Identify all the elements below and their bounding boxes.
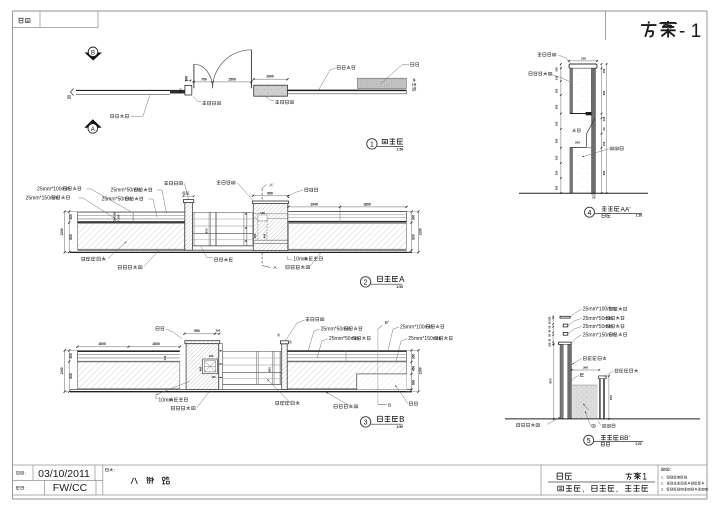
svg-text:160: 160 — [209, 354, 214, 358]
svg-text:250: 250 — [555, 170, 559, 175]
svg-text:150: 150 — [602, 141, 606, 146]
svg-text:3: 3 — [364, 420, 368, 427]
svg-text:300: 300 — [583, 365, 588, 369]
svg-text:A: A — [91, 127, 95, 133]
svg-text:25mm*50mm: 25mm*50mm — [321, 326, 351, 332]
svg-text:900: 900 — [267, 367, 271, 372]
svg-text:3.: 3. — [661, 488, 664, 492]
svg-text:FW/CC: FW/CC — [53, 482, 88, 494]
svg-text:.: . — [687, 476, 688, 480]
svg-text:100: 100 — [602, 68, 606, 73]
svg-text:1:50: 1:50 — [396, 425, 403, 429]
svg-text:03/10/2011: 03/10/2011 — [38, 468, 90, 480]
svg-text:150: 150 — [602, 116, 606, 121]
svg-text:20: 20 — [592, 196, 596, 200]
svg-text:1940: 1940 — [310, 202, 318, 206]
svg-text:1800: 1800 — [363, 202, 371, 206]
svg-text:800: 800 — [69, 373, 73, 379]
svg-text::: : — [670, 468, 671, 473]
svg-text:150: 150 — [555, 155, 559, 160]
svg-text:A: A — [399, 275, 405, 284]
svg-text:100: 100 — [179, 88, 183, 93]
svg-text:1200: 1200 — [60, 367, 64, 374]
svg-text:1000: 1000 — [266, 75, 274, 79]
svg-text:300: 300 — [69, 353, 73, 359]
svg-text:2.: 2. — [661, 482, 664, 486]
svg-text:600: 600 — [609, 395, 613, 400]
svg-text:100: 100 — [555, 67, 559, 72]
svg-text:800: 800 — [412, 234, 416, 240]
svg-text:2: 2 — [364, 280, 368, 287]
svg-text:100: 100 — [555, 88, 559, 93]
svg-text:1600: 1600 — [98, 342, 106, 346]
svg-text:1.: 1. — [661, 476, 664, 480]
svg-text::: : — [25, 486, 26, 491]
svg-text:25mm*150mm: 25mm*150mm — [26, 195, 59, 201]
svg-text:4: 4 — [588, 210, 592, 217]
svg-text:700: 700 — [201, 77, 207, 81]
svg-text:800: 800 — [602, 170, 606, 175]
svg-text:25mm*150mm: 25mm*150mm — [583, 332, 616, 338]
svg-text:25mm*50mm: 25mm*50mm — [583, 324, 613, 330]
svg-text:25mm*50mm: 25mm*50mm — [583, 316, 613, 322]
svg-text:300: 300 — [555, 104, 559, 109]
svg-text:300: 300 — [555, 138, 559, 143]
svg-text:- 1: - 1 — [679, 21, 701, 42]
svg-text:B': B' — [385, 320, 389, 325]
svg-text:25mm*100mm: 25mm*100mm — [37, 186, 70, 192]
svg-text:100: 100 — [211, 375, 216, 379]
svg-text:.: . — [705, 482, 706, 486]
svg-text:,: , — [582, 484, 584, 494]
svg-text:160: 160 — [260, 211, 265, 215]
svg-text:800: 800 — [69, 234, 73, 240]
svg-text::: : — [25, 471, 26, 476]
svg-text:B: B — [91, 50, 95, 56]
svg-text::: : — [114, 468, 115, 473]
svg-text:300: 300 — [412, 354, 416, 360]
svg-text:900: 900 — [205, 228, 209, 233]
svg-text:150: 150 — [555, 75, 559, 80]
svg-text:460: 460 — [198, 366, 202, 371]
svg-text:1:20: 1:20 — [636, 213, 643, 217]
svg-text:1:20: 1:20 — [635, 442, 642, 446]
svg-text:,: , — [616, 484, 618, 494]
svg-text:1: 1 — [642, 472, 647, 482]
svg-text:1200: 1200 — [419, 228, 423, 235]
svg-text:25mm*50mm: 25mm*50mm — [111, 188, 141, 194]
svg-text:200: 200 — [216, 329, 221, 333]
svg-text:25mm*100mm: 25mm*100mm — [583, 307, 616, 313]
svg-text:100: 100 — [163, 355, 167, 360]
svg-text:460: 460 — [263, 233, 267, 238]
svg-text:1600: 1600 — [152, 342, 160, 346]
svg-text:1: 1 — [370, 142, 374, 149]
svg-text:A': A' — [270, 183, 274, 188]
svg-text:1500: 1500 — [228, 77, 236, 81]
svg-text:100: 100 — [581, 56, 586, 60]
svg-text:950: 950 — [194, 329, 200, 333]
svg-text:800: 800 — [548, 378, 552, 383]
svg-text:600: 600 — [412, 380, 416, 386]
svg-text:B: B — [399, 415, 404, 424]
svg-text:5: 5 — [587, 438, 591, 445]
svg-text:300: 300 — [412, 215, 416, 221]
svg-text:800: 800 — [602, 90, 606, 95]
svg-text:.: . — [708, 488, 709, 492]
svg-text:950: 950 — [267, 191, 273, 195]
svg-text:300: 300 — [69, 214, 73, 220]
svg-text:100: 100 — [117, 214, 121, 219]
svg-text:AA': AA' — [621, 206, 631, 213]
svg-text:250: 250 — [555, 185, 559, 190]
svg-text:25mm*50mm: 25mm*50mm — [329, 336, 359, 342]
svg-text:25mm*100mm: 25mm*100mm — [400, 324, 433, 330]
svg-text:150: 150 — [555, 121, 559, 126]
svg-text:460: 460 — [253, 233, 257, 238]
svg-text:1:50: 1:50 — [397, 148, 404, 152]
svg-text:150: 150 — [549, 342, 552, 347]
svg-text:200: 200 — [575, 141, 580, 145]
svg-text:50: 50 — [602, 127, 606, 130]
svg-text:B: B — [388, 402, 391, 407]
svg-text:1200: 1200 — [60, 228, 64, 235]
svg-text:100: 100 — [549, 316, 552, 321]
svg-text:25mm*150mm: 25mm*150mm — [408, 336, 441, 342]
svg-text:1200: 1200 — [419, 367, 423, 374]
svg-text:450: 450 — [412, 366, 416, 372]
svg-text:1:50: 1:50 — [396, 285, 403, 289]
